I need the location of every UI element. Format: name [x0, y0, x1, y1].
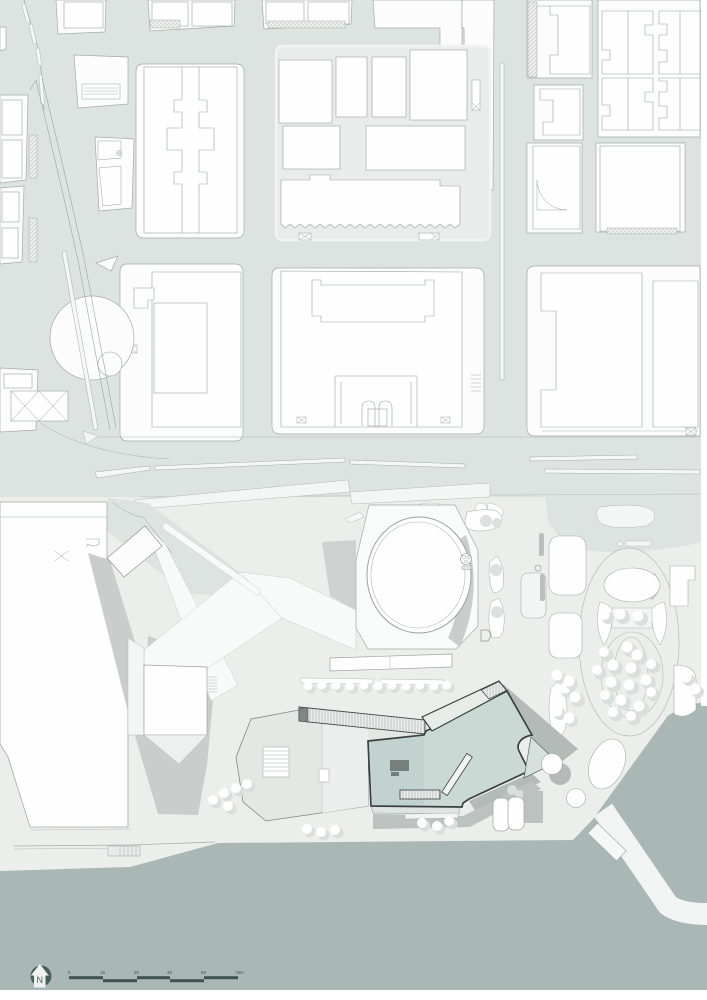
- svg-text:N: N: [37, 975, 44, 985]
- svg-text:75m: 75m: [235, 970, 244, 975]
- svg-text:30: 30: [134, 970, 140, 975]
- svg-text:15: 15: [100, 970, 106, 975]
- svg-text:60: 60: [201, 970, 207, 975]
- svg-text:45: 45: [167, 970, 173, 975]
